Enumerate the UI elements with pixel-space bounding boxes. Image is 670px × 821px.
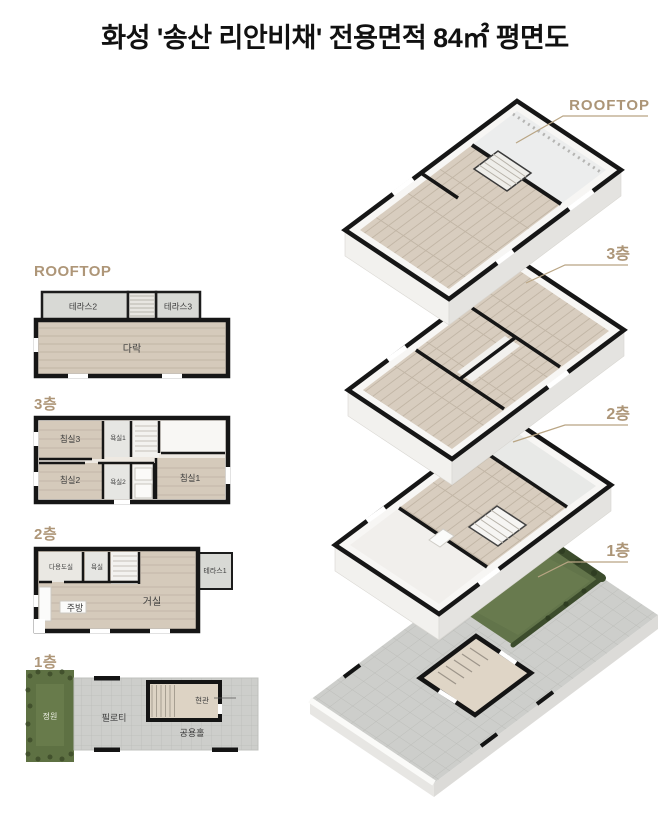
closet-box xyxy=(135,468,152,480)
garden-label: 정원 xyxy=(43,711,58,721)
entrance-label: 현관 xyxy=(195,695,209,705)
floorplan-infographic: 화성 '송산 리안비채' 전용면적 84㎡ 평면도 ROOFTOP 테라스2 테… xyxy=(0,0,670,821)
floor3-plan-label: 3층 xyxy=(34,393,57,414)
kitchen-counter xyxy=(39,587,51,621)
bedroom3-label: 침실3 xyxy=(60,434,81,444)
iso-exploded-view: ROOFTOP 3층 2층 1층 xyxy=(280,85,670,810)
floor2-plan-2d: 다용도실 욕실 테라스1 주방 거실 xyxy=(30,543,235,635)
iso-floor2-label: 2층 xyxy=(606,405,630,423)
kitchen-label: 주방 xyxy=(67,603,84,613)
terrace2-label: 테라스2 xyxy=(69,302,97,312)
closet-box xyxy=(135,484,152,498)
entrance-room xyxy=(148,682,220,720)
floor1-plan-2d: 정원 필로티 공용홀 현관 xyxy=(22,666,262,766)
terrace3-label: 테라스3 xyxy=(164,302,192,312)
floor3-plan-2d: 침실3 욕실1 침실2 욕실2 침실1 xyxy=(30,412,235,506)
bath2-label: 욕실2 xyxy=(110,477,126,486)
rooftop-plan-label: ROOFTOP xyxy=(34,263,111,280)
iso-rooftop-label: ROOFTOP xyxy=(569,97,650,114)
floor3-dressroom-area xyxy=(161,421,225,453)
iso-floor1-label: 1층 xyxy=(606,542,630,560)
bath-label: 욕실 xyxy=(91,562,103,571)
common-hall-label: 공용홀 xyxy=(180,727,205,738)
attic-label: 다락 xyxy=(123,343,141,355)
utility-label: 다용도실 xyxy=(49,562,73,571)
terrace1-label: 테라스1 xyxy=(203,566,226,575)
bedroom2-label: 침실2 xyxy=(60,475,81,485)
floor2-stairs xyxy=(111,552,139,584)
bedroom1-label: 침실1 xyxy=(180,473,201,483)
bath1-label: 욕실1 xyxy=(110,433,126,442)
iso-floor3-label: 3층 xyxy=(606,245,630,263)
pillar-notch xyxy=(34,619,45,633)
iso-rooftop xyxy=(345,101,621,325)
piloti-label: 필로티 xyxy=(102,712,127,723)
rooftop-plan-2d: 테라스2 테라스3 다락 xyxy=(30,286,235,380)
living-label: 거실 xyxy=(143,596,161,608)
page-title: 화성 '송산 리안비채' 전용면적 84㎡ 평면도 xyxy=(0,16,670,55)
floor2-plan-label: 2층 xyxy=(34,523,57,544)
